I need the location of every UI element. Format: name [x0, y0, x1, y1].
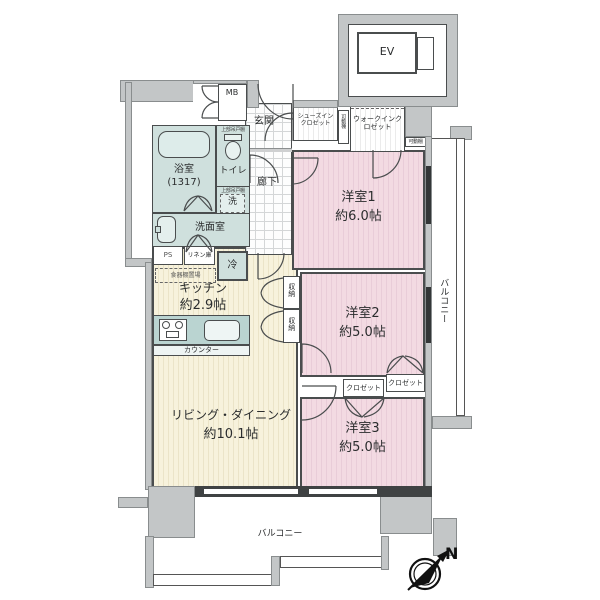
bathroom-size: (1317) [167, 177, 200, 188]
walk-in-closet-label: ウォークインクロゼット [353, 115, 402, 132]
kitchen-sink [204, 320, 240, 341]
movable-shelf-strip-label: 可動棚 [340, 114, 346, 128]
stove-burner-left [162, 321, 170, 329]
closet-bedroom3-label: クロゼット [343, 384, 384, 393]
walk-in-closet-shelf-line [351, 108, 404, 109]
wall [118, 497, 148, 508]
compass-north-label: N [445, 544, 458, 563]
room-bedroom1-label: 洋室1 [292, 190, 425, 206]
storage-lower-label: 収納 [287, 317, 296, 331]
pipe-space-label: PS [153, 251, 183, 260]
room-bedroom3-size: 約5.0帖 [300, 440, 425, 456]
bedroom2-window [426, 287, 431, 343]
room-bedroom2-label: 洋室2 [300, 306, 425, 322]
wall [125, 82, 132, 265]
washer-label: 洗 [220, 197, 245, 208]
room-bedroom2-size: 約5.0帖 [300, 325, 425, 341]
entrance-step-line [245, 148, 292, 152]
movable-shelf-small-label: 可動棚 [405, 139, 426, 145]
wall [145, 262, 152, 490]
room-living-label: リビング・ダイニング [161, 408, 301, 423]
storage-upper-label: 収納 [287, 283, 296, 297]
living-window [203, 489, 299, 494]
stove-burner-right [175, 321, 183, 329]
wall [432, 416, 472, 429]
room-bedroom3-label: 洋室3 [300, 421, 425, 437]
room-toilet-label: トイレ [216, 166, 250, 177]
room-kitchen-size: 約2.9帖 [168, 298, 238, 314]
toilet-bowl [225, 141, 241, 160]
room-bathroom-label: 浴室 (1317) [152, 164, 216, 189]
balcony-right [432, 138, 457, 416]
stove-grill [166, 331, 179, 338]
linen-cabinet-label: リネン庫 [184, 252, 215, 260]
wall [293, 100, 338, 108]
meter-box-area [193, 84, 218, 121]
room-hallway-label: 廊下 [249, 177, 285, 190]
compass: N [398, 542, 462, 598]
balcony-bottom-railing-right [280, 556, 383, 568]
bedroom3-window [309, 489, 377, 494]
bathroom-name: 浴室 [174, 164, 194, 175]
toilet-upper-cabinet-label: 上部吊戸棚 [217, 127, 249, 133]
wall [247, 80, 259, 108]
room-kitchen-label: キッチン [168, 281, 238, 296]
bedroom1-window [426, 166, 431, 224]
floor-plan: 浴室 (1317) 上部吊戸棚 トイレ 上部吊戸棚 洗 洗面室 PS リネン庫 … [0, 0, 600, 600]
toilet-tank [224, 134, 242, 141]
meter-box-text: MB [226, 88, 238, 97]
bathtub [158, 131, 210, 158]
counter-label: カウンター [153, 346, 250, 355]
balcony-post [381, 536, 389, 570]
balcony-bottom-railing-left [153, 574, 275, 586]
wall [148, 486, 195, 538]
elevator-label: EV [357, 45, 417, 59]
balcony-post [271, 556, 280, 586]
room-living-size: 約10.1帖 [161, 427, 301, 443]
room-entrance-label: 玄関 [246, 116, 282, 129]
shoes-in-closet-label: シューズインクロゼット [295, 113, 336, 127]
meter-box-label: MB [225, 88, 239, 98]
room-washroom-label: 洗面室 [178, 222, 242, 235]
refrigerator-label: 冷 [217, 260, 248, 273]
room-bedroom1-size: 約6.0帖 [292, 209, 425, 225]
balcony-right-railing [456, 138, 465, 416]
elevator-door [417, 37, 434, 70]
washroom-sink-handle [155, 226, 161, 233]
closet-bedroom2-label: クロゼット [386, 379, 425, 388]
balcony-bottom-label: バルコニー [248, 529, 312, 540]
cupboard-space-label: 食器棚置場 [155, 272, 216, 280]
balcony-right-label: バルコニー [437, 278, 448, 323]
